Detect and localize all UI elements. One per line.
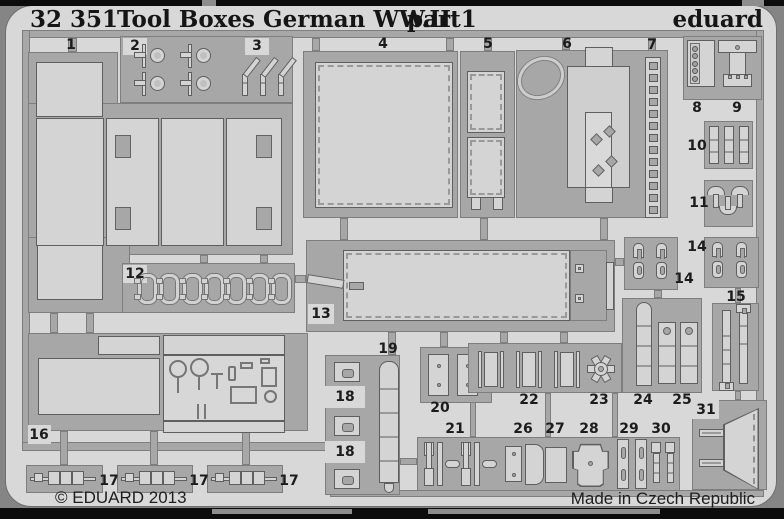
part-13-tray-panel	[343, 250, 570, 321]
part-6-tab	[585, 47, 613, 67]
runner-segment	[60, 431, 68, 465]
brand-logo: eduard	[672, 8, 763, 31]
etched-hole	[735, 45, 740, 50]
part-16-tab	[163, 335, 285, 355]
etched-oval	[660, 266, 665, 275]
etched-line	[243, 82, 247, 84]
photo-edge-tab	[212, 509, 352, 514]
part-8-plate	[687, 40, 715, 87]
etched-hole	[649, 110, 658, 118]
etched-circle	[190, 358, 209, 377]
latch-bar	[180, 80, 192, 86]
part-label-22: 22	[519, 393, 538, 407]
part-10-strip	[709, 126, 719, 164]
runner-segment	[600, 218, 608, 240]
runner-segment	[295, 275, 306, 283]
frame-bottom-left	[22, 442, 334, 451]
part-22-rail	[478, 351, 482, 388]
part-22-rail	[516, 351, 520, 388]
part-16-tab	[98, 336, 160, 355]
made-in-text: Made in Czech Republic	[571, 490, 755, 507]
part-label-23: 23	[589, 393, 608, 407]
etched-line	[261, 82, 265, 84]
part-label-21: 21	[445, 422, 464, 436]
runner-segment	[480, 218, 488, 240]
part-9-bracket-waist	[729, 52, 746, 75]
part-19-end	[384, 483, 394, 493]
part-label-17: 17	[189, 474, 208, 488]
part-22-rail	[554, 351, 558, 388]
part-3-hinge	[256, 52, 270, 98]
part-17-strap-segment	[163, 471, 175, 485]
part-label-31: 31	[696, 403, 715, 417]
etched-notch	[728, 75, 732, 79]
part-12-clip	[250, 274, 269, 304]
part-21-pin	[445, 460, 460, 468]
latch-disc-shade	[200, 80, 207, 87]
part-21-key	[424, 468, 434, 486]
part-label-2: 2	[130, 39, 140, 53]
etched-texture-border	[470, 140, 502, 195]
etched-cutout	[256, 135, 272, 158]
etched-line	[279, 82, 283, 84]
part-17-strap-segment	[72, 471, 84, 485]
latch-disc	[150, 48, 165, 63]
runner-segment	[500, 332, 508, 343]
part-21-key	[461, 468, 471, 486]
etched-oval	[716, 265, 721, 274]
part-18-buckle	[334, 362, 360, 382]
part-12-clip	[160, 274, 179, 304]
part-17-strap-segment	[229, 471, 241, 485]
etched-notch	[736, 75, 740, 79]
part-14-hinge-ring	[712, 261, 723, 278]
runner-segment	[150, 431, 158, 465]
part-label-5: 5	[483, 37, 493, 51]
etched-hole	[649, 74, 658, 82]
etched-cutout	[115, 135, 131, 158]
part-label-30: 30	[651, 422, 670, 436]
part-label-11: 11	[689, 196, 708, 210]
part-2-latch	[178, 44, 212, 68]
etched-notch	[744, 75, 748, 79]
part-5-tab	[471, 197, 481, 210]
runner-segment	[200, 255, 208, 263]
part-10-hinge-strips	[709, 126, 751, 164]
runner-segment	[260, 255, 268, 263]
part-7-hinge-strip	[645, 57, 661, 218]
part-label-3: 3	[252, 39, 262, 53]
part-label-16: 16	[29, 428, 48, 442]
runner-segment	[615, 258, 624, 266]
part-15-rod	[739, 310, 748, 384]
part-label-17: 17	[279, 474, 298, 488]
part-12-clip	[272, 274, 291, 304]
part-14-hinge-ring	[633, 262, 644, 279]
part-17-strap-buckle	[34, 473, 43, 482]
copyright-text: © EDUARD 2013	[55, 489, 187, 506]
cluster-15-runner	[712, 303, 759, 391]
part-label-12: 12	[125, 267, 144, 281]
part-12-clip	[227, 274, 246, 304]
latch-disc-shade	[154, 80, 161, 87]
part-13-end-section	[570, 250, 607, 321]
part-2-latch	[178, 72, 212, 96]
part-label-18: 18	[335, 390, 354, 404]
part-3-hinge	[274, 52, 288, 98]
part-5-panel	[467, 71, 505, 133]
etched-line	[710, 139, 718, 141]
part-21-key	[437, 442, 443, 486]
part-14-hinge-ring	[656, 262, 667, 279]
part-21-pin	[482, 460, 497, 468]
part-3-hinge	[238, 52, 252, 98]
part-label-8: 8	[692, 101, 702, 115]
part-label-26: 26	[513, 422, 532, 436]
etched-hole	[649, 158, 658, 166]
etched-hole	[649, 62, 658, 70]
etched-slot	[637, 249, 642, 259]
etched-hole	[649, 170, 658, 178]
etched-hole	[649, 134, 658, 142]
etched-hole	[649, 194, 658, 202]
etched-hole	[649, 206, 658, 214]
part-14-hinge-u	[736, 242, 747, 257]
part-label-28: 28	[579, 422, 598, 436]
runner-segment	[446, 38, 454, 51]
part-label-6: 6	[562, 37, 572, 51]
photo-edge-bottom	[0, 508, 784, 519]
part-17-strap-buckle	[215, 473, 224, 482]
part-15-fork	[719, 382, 734, 391]
part-30-strip	[651, 442, 661, 453]
part-26-bracket	[525, 444, 544, 485]
runner-segment	[612, 393, 618, 437]
etched-cutout	[115, 207, 131, 230]
part-label-10: 10	[687, 139, 706, 153]
etched-cutout	[256, 207, 272, 230]
part-23-gear	[587, 355, 615, 383]
part-25-latch-strip	[658, 322, 676, 384]
part-10-strip	[724, 126, 734, 164]
part-22-link	[484, 352, 498, 387]
etched-oval	[740, 265, 745, 274]
part-14-hinge-ring	[736, 261, 747, 278]
etched-texture-border	[470, 74, 502, 130]
part-6-tab	[585, 187, 613, 203]
etched-slot	[740, 248, 745, 258]
etched-line	[725, 139, 733, 141]
runner-segment	[50, 313, 58, 333]
part-13-tab	[606, 262, 614, 310]
part-29-strip	[635, 439, 647, 489]
part-30-strip	[665, 442, 675, 453]
photo-edge-tab	[428, 509, 660, 514]
etched-square	[575, 294, 584, 303]
part-17-strap-segment	[151, 471, 163, 485]
part-label-15: 15	[726, 290, 745, 304]
part-18-buckle	[334, 416, 360, 436]
etched-line	[710, 151, 718, 153]
etched-hole	[649, 86, 658, 94]
runner-segment	[400, 458, 417, 465]
etched-hole	[649, 146, 658, 154]
part-5-tab	[493, 197, 503, 210]
part-26-bracket	[505, 446, 522, 482]
runner-segment	[735, 391, 741, 400]
latch-bar	[180, 52, 192, 58]
runner-segment	[340, 218, 348, 240]
part-17-strap-segment	[253, 471, 265, 485]
part-12-clips	[138, 274, 290, 304]
part-29-strip	[617, 439, 629, 489]
catalog-number: 32 351	[30, 8, 118, 31]
runner-segment	[312, 38, 320, 51]
part-label-25: 25	[672, 393, 691, 407]
part-22-rail	[500, 351, 504, 388]
etched-circle	[169, 360, 187, 378]
part-number: part1	[407, 8, 477, 31]
part-22-link	[522, 352, 536, 387]
etched-hole	[649, 122, 658, 130]
part-1-side-panel	[36, 118, 104, 246]
part-22-link	[560, 352, 574, 387]
part-label-19: 19	[378, 342, 397, 356]
part-17-strap-segment	[48, 471, 60, 485]
part-label-20: 20	[430, 401, 449, 415]
part-17-strap-segment	[60, 471, 72, 485]
part-27-plate	[545, 447, 567, 483]
cluster-14-runner	[624, 237, 678, 290]
runner-segment	[440, 332, 448, 347]
part-17-strap-segment	[139, 471, 151, 485]
part-label-18: 18	[335, 445, 354, 459]
part-25-latch-strip	[680, 322, 698, 384]
etched-slot	[660, 249, 665, 259]
part-label-17: 17	[99, 474, 118, 488]
part-19-strap	[379, 361, 399, 483]
part-label-27: 27	[545, 422, 564, 436]
etched-texture-border	[346, 253, 567, 318]
photoetch-fret-photo: 32 351 Tool Boxes German WW.II part1 edu…	[0, 0, 784, 519]
runner-segment	[560, 332, 568, 343]
latch-disc	[196, 76, 211, 91]
part-16-detail-panel	[163, 355, 285, 421]
part-1-side-panel	[161, 118, 224, 246]
part-8-hole-column	[690, 43, 700, 84]
etched-hole	[649, 98, 658, 106]
part-2-latch	[132, 72, 166, 96]
etched-square	[575, 264, 584, 273]
part-4-lid-panel	[315, 62, 453, 208]
part-11-stem	[725, 196, 731, 210]
sheet-title: Tool Boxes German WW.II	[117, 8, 451, 31]
part-11-stem	[737, 194, 743, 208]
etched-line	[740, 151, 748, 153]
part-20-bracket	[428, 354, 449, 396]
part-9-bracket-foot	[723, 74, 752, 87]
part-30-strip	[653, 453, 660, 483]
part-1-side-panel	[106, 118, 159, 246]
part-label-1: 1	[66, 38, 76, 52]
etched-hole	[649, 182, 658, 190]
latch-disc-shade	[154, 52, 161, 59]
part-label-14: 14	[687, 240, 706, 254]
part-14-hinge-u	[633, 243, 644, 258]
runner-segment	[86, 313, 94, 333]
etched-line	[725, 151, 733, 153]
etched-oval	[637, 266, 642, 275]
part-3-hinges	[238, 52, 292, 98]
part-10-strip	[739, 126, 749, 164]
runner-segment	[654, 290, 662, 298]
part-17-strap-segment	[241, 471, 253, 485]
part-label-9: 9	[732, 101, 742, 115]
latch-disc-shade	[200, 52, 207, 59]
part-5-panel	[467, 137, 505, 198]
part-label-4: 4	[378, 37, 388, 51]
part-15-fork	[736, 304, 751, 313]
part-16-left-panel	[38, 358, 160, 415]
part-16-tab	[163, 421, 285, 433]
part-label-7: 7	[647, 38, 657, 52]
etched-slot	[716, 248, 721, 258]
latch-disc	[196, 48, 211, 63]
part-1-side-panel	[226, 118, 282, 246]
etched-rect	[228, 366, 236, 381]
part-1-base-panel	[37, 245, 103, 300]
etched-circle	[264, 390, 277, 403]
part-1-lid-panel	[36, 62, 103, 117]
etched-texture-border	[318, 65, 450, 205]
part-label-24: 24	[633, 393, 652, 407]
part-24-latch-strip	[636, 302, 652, 386]
etched-line	[740, 139, 748, 141]
part-30-strip	[667, 453, 674, 483]
latch-bar	[134, 80, 146, 86]
part-18-buckle	[334, 469, 360, 489]
part-14-hinge-u	[712, 242, 723, 257]
part-12-clip	[183, 274, 202, 304]
etched-slot	[349, 282, 364, 290]
latch-disc	[150, 76, 165, 91]
part-15-rod	[722, 310, 731, 384]
part-label-13: 13	[311, 307, 330, 321]
part-2-latches	[132, 44, 232, 100]
part-22-rail	[576, 351, 580, 388]
runner-segment	[242, 431, 250, 465]
part-14-hinge-u	[656, 243, 667, 258]
part-21-key	[474, 442, 480, 486]
part-label-29: 29	[619, 422, 638, 436]
part-label-14: 14	[674, 272, 693, 286]
part-17-strap-buckle	[125, 473, 134, 482]
part-22-rail	[538, 351, 542, 388]
part-12-clip	[205, 274, 224, 304]
part-31-arm	[699, 429, 724, 437]
part-31-arm	[699, 459, 724, 467]
